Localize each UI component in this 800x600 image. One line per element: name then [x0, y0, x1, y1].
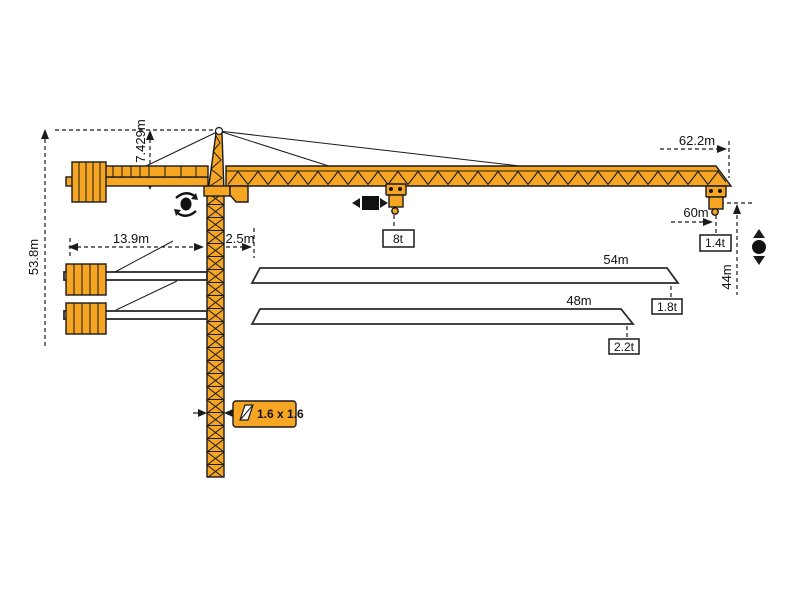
tip-load-54-label: 1.8t: [657, 300, 678, 314]
arrow-up: [41, 129, 49, 139]
min-radius-label: 2.5m: [226, 231, 255, 246]
crane-structure: [66, 128, 731, 478]
tower-lattice: [207, 192, 224, 477]
total-height-label: 53.8m: [26, 239, 41, 275]
counter-jib-length-label: 13.9m: [113, 231, 149, 246]
jib-tie-rope-long: [219, 131, 537, 168]
apex-pulley: [216, 128, 223, 135]
slew-icon: [174, 193, 198, 216]
mast-section-label: 1.6 x 1.6: [257, 407, 304, 421]
jib-54-label: 54m: [603, 252, 628, 267]
hook-block: [709, 197, 723, 209]
hook-drop-label: 44m: [719, 264, 734, 289]
tip-load-48-label: 2.2t: [614, 340, 635, 354]
tower-apex: [208, 133, 224, 192]
tip-load-62-label: 1.4t: [705, 236, 726, 250]
max-radius-label: 62.2m: [679, 133, 715, 148]
arrow-left: [224, 409, 233, 417]
counterweight-54: [66, 264, 106, 295]
max-load-label: 8t: [393, 232, 404, 246]
trolley-frame: [706, 186, 726, 197]
trolley-tip: [706, 186, 726, 215]
trolley-wheel: [398, 187, 402, 191]
jib-outline-54m: [252, 268, 678, 283]
jib-lattice: [228, 171, 726, 185]
counter-jib-tie-rope: [146, 131, 219, 166]
trolley-wheel: [718, 189, 722, 193]
tip-radius-label: 60m: [683, 205, 708, 220]
counterweight-variants: [64, 241, 207, 334]
hoist-icon: [752, 229, 766, 265]
leader-48: [116, 281, 177, 310]
arrow-right: [717, 145, 727, 153]
jib-tie-rope-short: [219, 131, 335, 168]
trolley-wheel: [389, 187, 393, 191]
arrow-up: [733, 204, 741, 214]
crane-diagram: 1.6 x 1.6 8t 1.4t 1.8t 2.2t 53.8m 7.429m…: [0, 0, 800, 600]
trolley-mid: [386, 184, 406, 214]
jib-outline-48m: [252, 309, 633, 324]
counterweight-top: [72, 162, 106, 202]
operator-cab: [230, 186, 248, 202]
hook: [392, 208, 398, 214]
trolley-wheel: [709, 189, 713, 193]
trolley-frame: [386, 184, 406, 195]
arrow-right: [194, 243, 204, 251]
trolley-travel-icon: [352, 196, 388, 210]
counter-jib-platform: [104, 166, 208, 177]
jib-variants: [252, 268, 678, 324]
arrow-right: [198, 409, 207, 417]
hook: [712, 209, 718, 215]
counterweight-48: [66, 303, 106, 334]
jib-48-label: 48m: [566, 293, 591, 308]
head-height-label: 7.429m: [133, 119, 148, 162]
turntable: [204, 186, 230, 196]
hook-block: [389, 195, 403, 207]
load-boxes: 8t 1.4t 1.8t 2.2t: [383, 230, 731, 354]
